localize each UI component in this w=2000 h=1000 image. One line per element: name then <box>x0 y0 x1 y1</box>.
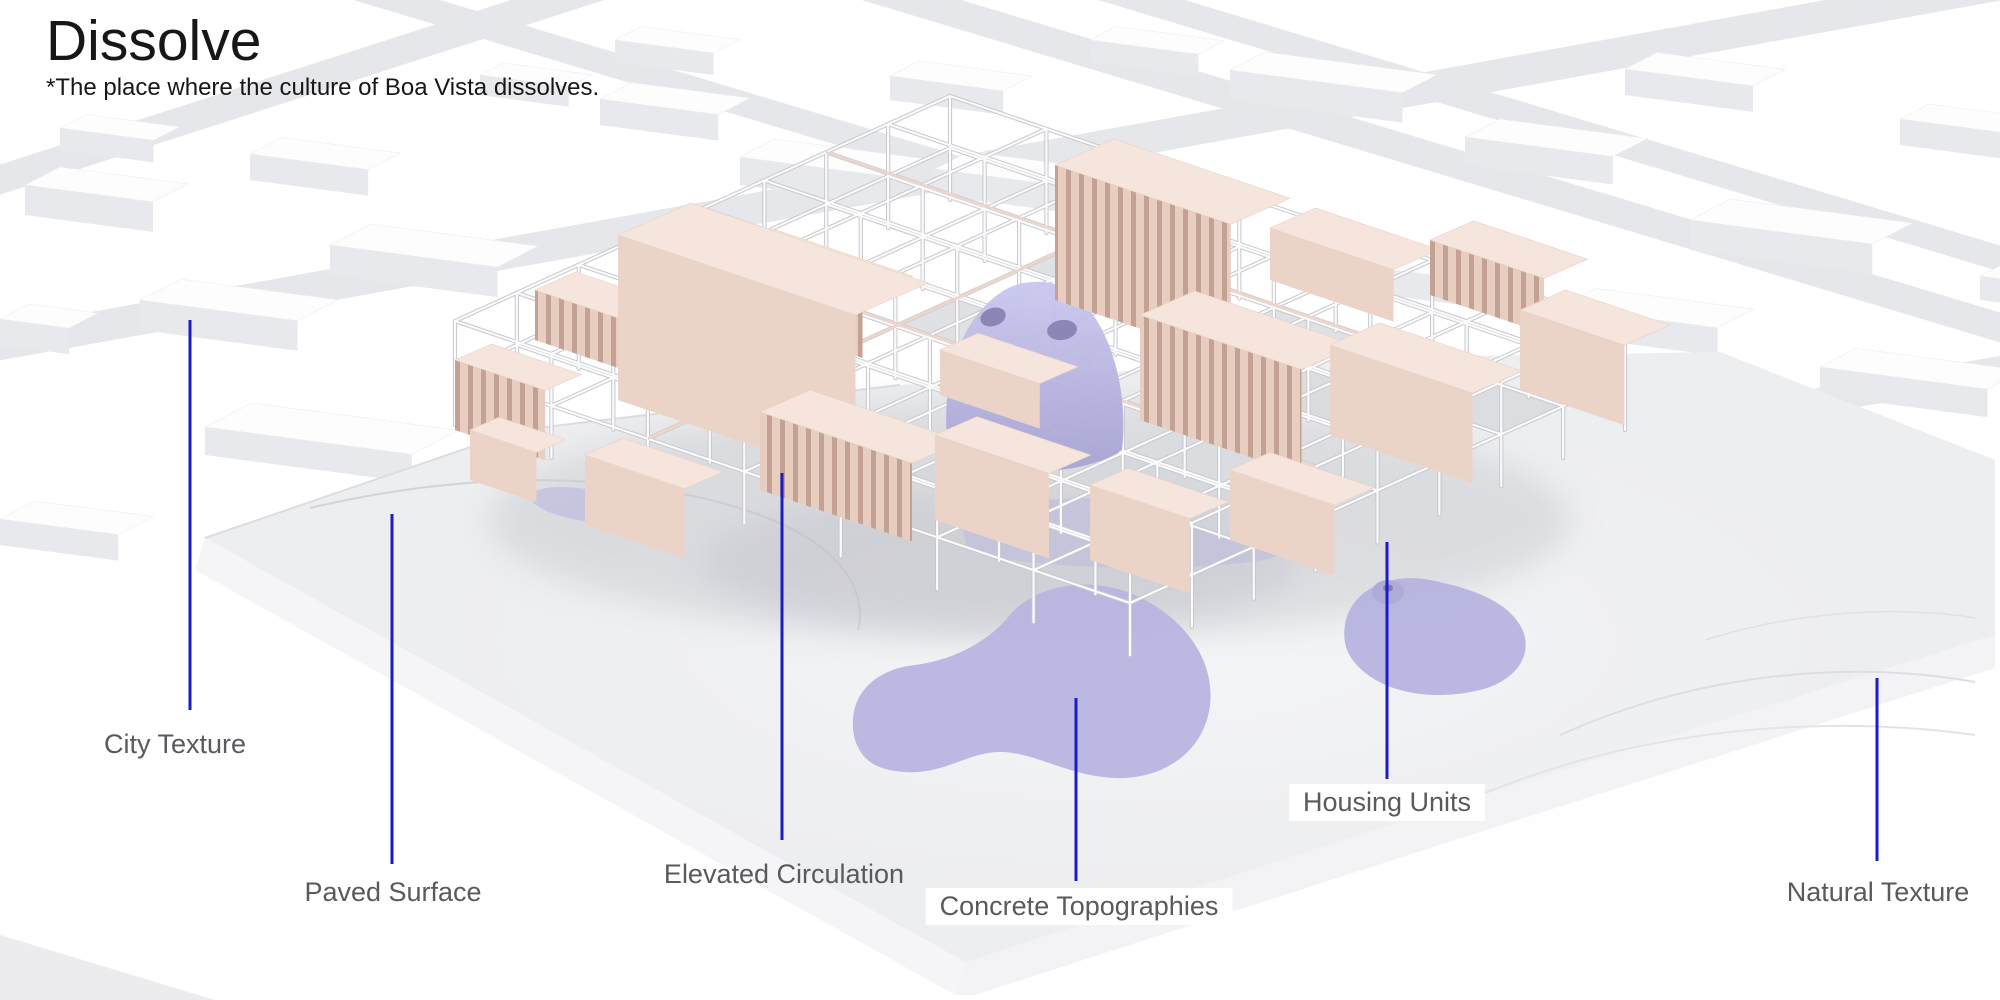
header: Dissolve *The place where the culture of… <box>46 10 599 102</box>
label-housing-units: Housing Units <box>1289 784 1485 821</box>
poster-canvas: Dissolve *The place where the culture of… <box>0 0 2000 1000</box>
label-elevated-circulation: Elevated Circulation <box>664 858 904 891</box>
label-concrete-topographies: Concrete Topographies <box>926 888 1233 925</box>
label-city-texture: City Texture <box>104 728 246 761</box>
page-subtitle: *The place where the culture of Boa Vist… <box>46 74 599 102</box>
label-paved-surface: Paved Surface <box>304 876 481 909</box>
label-natural-texture: Natural Texture <box>1787 876 1970 909</box>
page-title: Dissolve <box>46 10 599 72</box>
architectural-model-rendering <box>0 0 2000 1000</box>
